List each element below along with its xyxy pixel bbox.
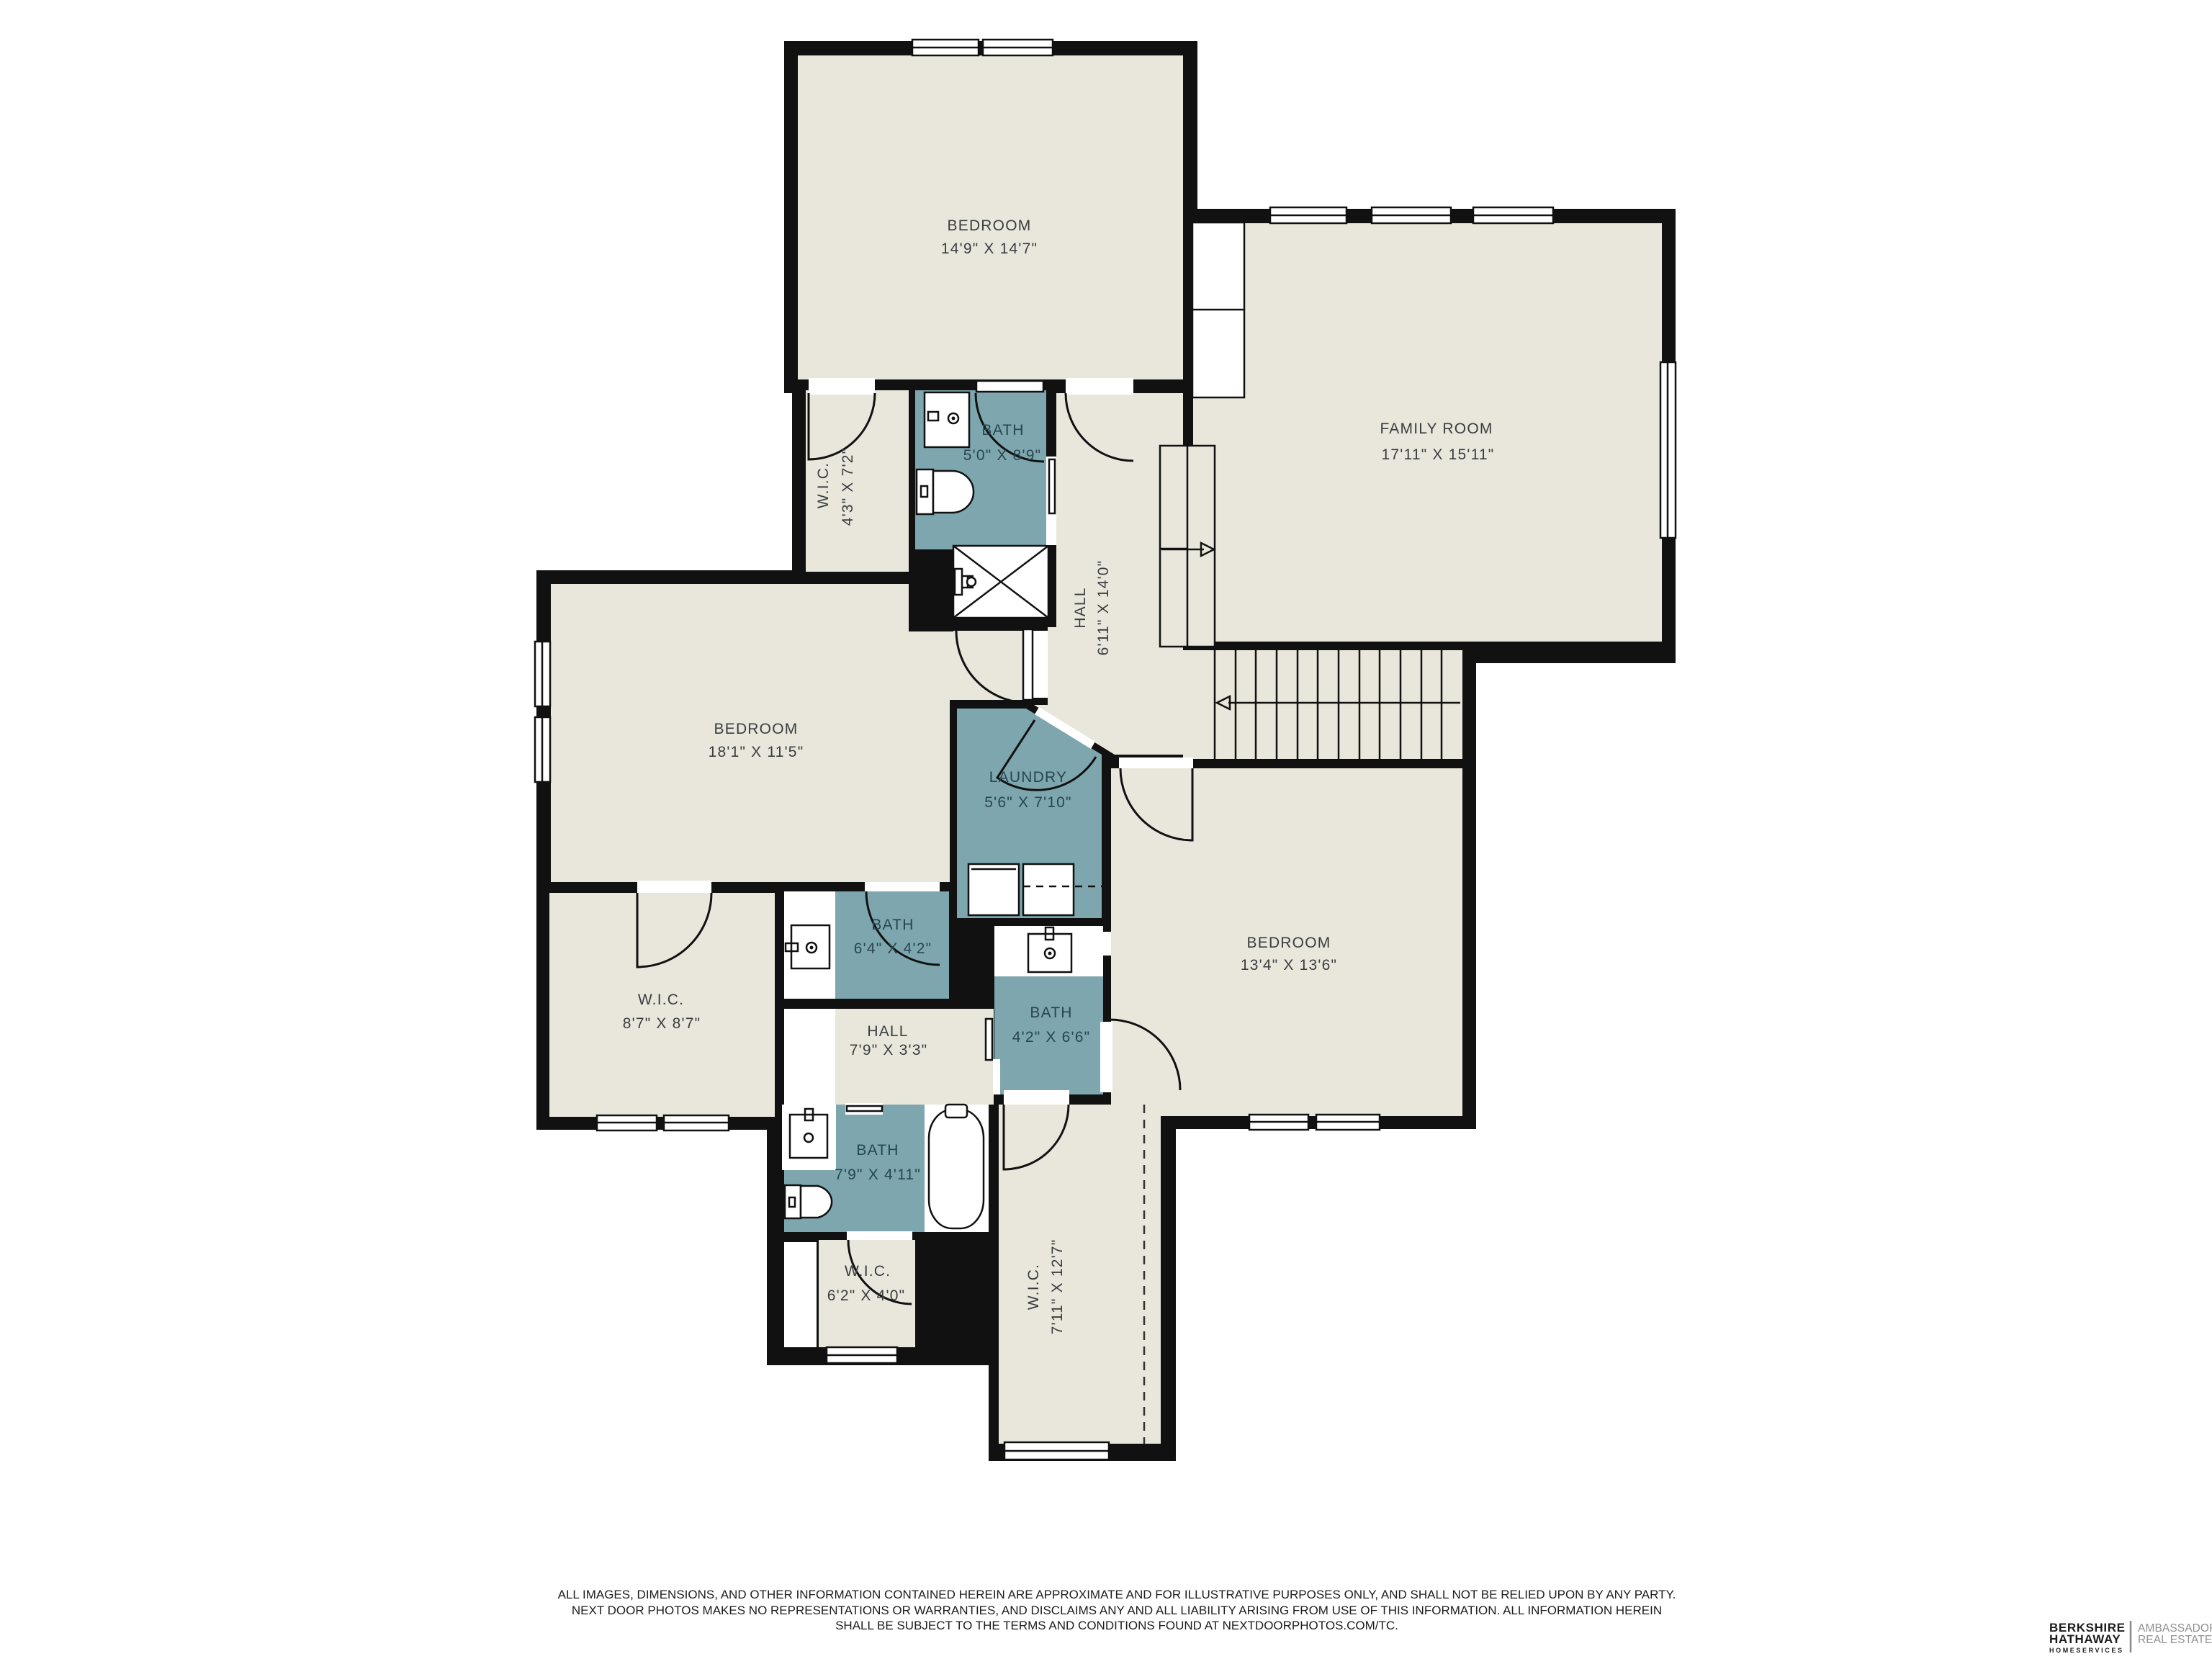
svg-text:5'0" X 8'9": 5'0" X 8'9" (963, 447, 1042, 464)
svg-text:AMBASSADOR: AMBASSADOR (2138, 1622, 2212, 1635)
svg-text:BATH: BATH (871, 917, 914, 933)
svg-text:8'7" X 8'7": 8'7" X 8'7" (623, 1015, 701, 1032)
svg-text:FAMILY ROOM: FAMILY ROOM (1380, 421, 1493, 437)
svg-text:REAL ESTATE: REAL ESTATE (2138, 1634, 2212, 1646)
svg-text:HATHAWAY: HATHAWAY (2049, 1632, 2121, 1646)
svg-text:BATH: BATH (856, 1142, 899, 1159)
svg-text:13'4" X 13'6": 13'4" X 13'6" (1241, 957, 1337, 974)
svg-text:7'11" X 12'7": 7'11" X 12'7" (1049, 1239, 1066, 1335)
svg-text:ALL IMAGES, DIMENSIONS, AND OT: ALL IMAGES, DIMENSIONS, AND OTHER INFORM… (558, 1588, 1676, 1601)
svg-text:HALL: HALL (867, 1023, 908, 1040)
svg-text:HOMESERVICES: HOMESERVICES (2049, 1647, 2124, 1654)
svg-text:14'9" X 14'7": 14'9" X 14'7" (941, 240, 1038, 257)
svg-text:NEXT DOOR PHOTOS MAKES NO REPR: NEXT DOOR PHOTOS MAKES NO REPRESENTATION… (572, 1604, 1662, 1617)
svg-text:BATH: BATH (1030, 1004, 1072, 1021)
svg-text:6'4" X 4'2": 6'4" X 4'2" (854, 940, 932, 957)
svg-text:7'9" X 4'11": 7'9" X 4'11" (835, 1166, 921, 1183)
svg-text:18'1" X 11'5": 18'1" X 11'5" (709, 744, 804, 760)
svg-text:LAUNDRY: LAUNDRY (989, 769, 1067, 786)
svg-text:4'3" X 7'2": 4'3" X 7'2" (840, 448, 856, 526)
svg-text:SHALL BE SUBJECT TO THE TERMS: SHALL BE SUBJECT TO THE TERMS AND CONDIT… (835, 1619, 1398, 1632)
svg-text:BEDROOM: BEDROOM (714, 721, 799, 737)
svg-text:6'11" X 14'0": 6'11" X 14'0" (1095, 560, 1112, 656)
svg-text:7'9" X 3'3": 7'9" X 3'3" (850, 1042, 928, 1058)
svg-text:W.I.C.: W.I.C. (815, 462, 832, 508)
svg-text:BEDROOM: BEDROOM (1247, 935, 1331, 951)
svg-text:6'2" X 4'0": 6'2" X 4'0" (827, 1287, 906, 1304)
svg-text:W.I.C.: W.I.C. (1025, 1264, 1042, 1310)
svg-text:5'6" X 7'10": 5'6" X 7'10" (984, 794, 1071, 811)
svg-text:BATH: BATH (981, 422, 1024, 439)
svg-text:HALL: HALL (1072, 587, 1089, 628)
svg-text:4'2" X 6'6": 4'2" X 6'6" (1012, 1029, 1091, 1046)
svg-text:BEDROOM: BEDROOM (948, 217, 1032, 234)
svg-text:W.I.C.: W.I.C. (845, 1263, 891, 1280)
svg-text:W.I.C.: W.I.C. (638, 992, 684, 1008)
svg-text:17'11" X 15'11": 17'11" X 15'11" (1382, 446, 1495, 463)
